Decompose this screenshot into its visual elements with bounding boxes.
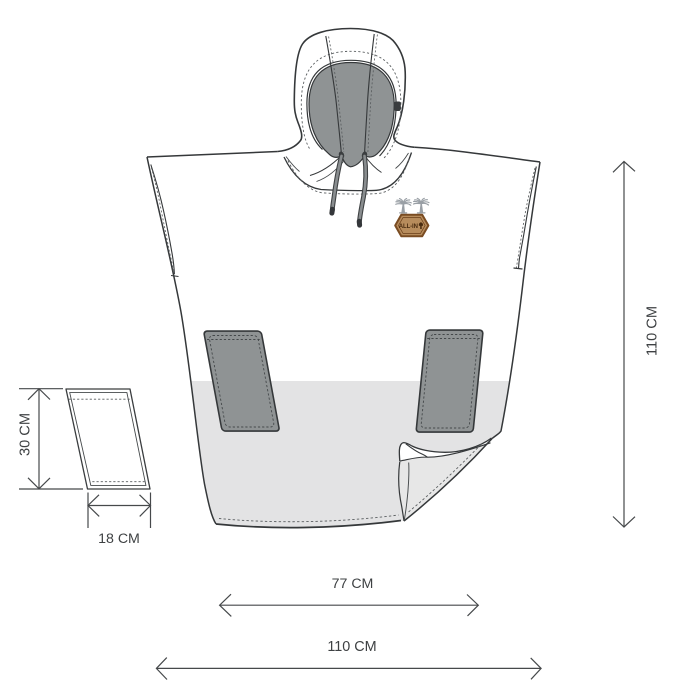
svg-text:77 CM: 77 CM xyxy=(332,576,374,592)
svg-text:30 CM: 30 CM xyxy=(18,413,34,456)
svg-text:18 CM: 18 CM xyxy=(98,531,140,547)
svg-text:ALL-IN: ALL-IN xyxy=(399,224,418,230)
svg-text:110 CM: 110 CM xyxy=(645,306,661,356)
svg-text:110 CM: 110 CM xyxy=(327,639,376,655)
